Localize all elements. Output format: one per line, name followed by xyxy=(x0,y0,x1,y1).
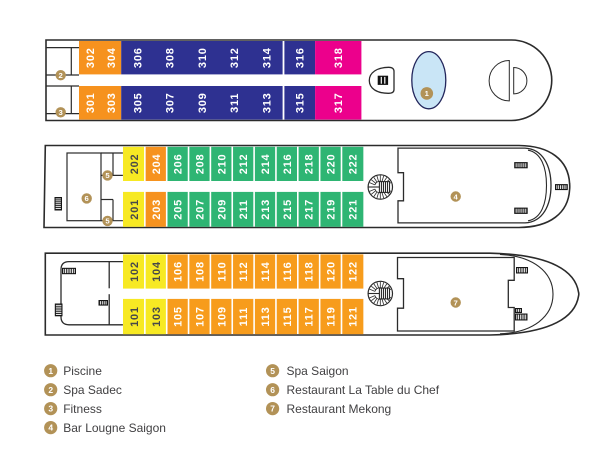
svg-text:1: 1 xyxy=(48,366,53,376)
svg-text:301: 301 xyxy=(85,92,97,113)
svg-text:211: 211 xyxy=(238,199,250,219)
svg-text:219: 219 xyxy=(326,199,338,220)
svg-text:103: 103 xyxy=(151,306,163,327)
svg-text:110: 110 xyxy=(216,261,228,281)
svg-text:212: 212 xyxy=(238,154,250,175)
svg-text:208: 208 xyxy=(194,154,206,175)
svg-text:107: 107 xyxy=(194,306,206,327)
svg-text:201: 201 xyxy=(129,199,141,220)
svg-text:217: 217 xyxy=(304,199,316,220)
svg-text:317: 317 xyxy=(333,92,345,113)
svg-text:214: 214 xyxy=(260,153,272,174)
svg-text:309: 309 xyxy=(197,92,209,113)
svg-text:106: 106 xyxy=(173,261,185,282)
svg-text:5: 5 xyxy=(270,366,275,376)
svg-text:316: 316 xyxy=(295,47,307,68)
svg-text:112: 112 xyxy=(238,261,250,281)
svg-text:312: 312 xyxy=(229,47,241,68)
svg-text:3: 3 xyxy=(48,404,53,414)
svg-text:207: 207 xyxy=(194,199,206,220)
svg-text:119: 119 xyxy=(326,306,338,326)
svg-text:2: 2 xyxy=(48,385,53,395)
svg-text:313: 313 xyxy=(261,92,273,113)
svg-text:4: 4 xyxy=(454,192,459,201)
svg-text:318: 318 xyxy=(333,47,345,68)
svg-text:218: 218 xyxy=(304,154,316,175)
svg-text:204: 204 xyxy=(151,153,163,174)
svg-text:203: 203 xyxy=(151,199,163,220)
svg-text:102: 102 xyxy=(129,261,141,282)
svg-text:3: 3 xyxy=(59,108,63,117)
svg-text:122: 122 xyxy=(347,261,359,282)
svg-text:117: 117 xyxy=(304,306,316,326)
svg-text:120: 120 xyxy=(326,261,338,282)
svg-text:108: 108 xyxy=(194,261,206,282)
svg-text:220: 220 xyxy=(326,154,338,175)
svg-text:4: 4 xyxy=(48,423,53,433)
svg-text:202: 202 xyxy=(129,154,141,175)
svg-text:Piscine: Piscine xyxy=(63,364,102,378)
svg-text:205: 205 xyxy=(173,199,185,220)
svg-text:Bar Lougne Saigon: Bar Lougne Saigon xyxy=(63,421,166,435)
svg-text:310: 310 xyxy=(197,47,209,68)
svg-text:315: 315 xyxy=(295,92,307,113)
svg-text:209: 209 xyxy=(216,199,228,220)
svg-text:101: 101 xyxy=(129,306,141,327)
svg-text:Spa Saigon: Spa Saigon xyxy=(287,364,349,378)
svg-text:221: 221 xyxy=(347,199,359,220)
svg-text:5: 5 xyxy=(105,217,110,226)
svg-text:111: 111 xyxy=(238,307,250,327)
svg-text:Restaurant La Table du Chef: Restaurant La Table du Chef xyxy=(287,383,440,397)
svg-text:307: 307 xyxy=(165,92,177,113)
svg-text:118: 118 xyxy=(304,261,316,281)
svg-text:Spa Sadec: Spa Sadec xyxy=(63,383,122,397)
svg-text:114: 114 xyxy=(260,261,272,281)
svg-text:210: 210 xyxy=(216,154,228,175)
svg-text:109: 109 xyxy=(216,306,228,327)
svg-text:Restaurant Mekong: Restaurant Mekong xyxy=(287,402,392,416)
svg-text:222: 222 xyxy=(347,154,359,175)
svg-text:306: 306 xyxy=(132,47,144,68)
svg-text:6: 6 xyxy=(85,194,89,203)
svg-text:308: 308 xyxy=(165,47,177,68)
svg-text:304: 304 xyxy=(106,47,118,68)
svg-text:6: 6 xyxy=(270,385,275,395)
svg-text:206: 206 xyxy=(173,154,185,175)
svg-text:121: 121 xyxy=(347,306,359,327)
svg-text:7: 7 xyxy=(270,404,275,414)
svg-text:311: 311 xyxy=(229,93,241,113)
svg-text:115: 115 xyxy=(282,306,294,326)
svg-text:Fitness: Fitness xyxy=(63,402,102,416)
svg-text:213: 213 xyxy=(260,199,272,220)
svg-text:305: 305 xyxy=(132,92,144,113)
svg-text:2: 2 xyxy=(59,71,63,80)
svg-text:216: 216 xyxy=(282,154,294,175)
svg-text:314: 314 xyxy=(261,47,273,68)
svg-text:105: 105 xyxy=(173,306,185,327)
svg-text:215: 215 xyxy=(282,199,294,220)
svg-text:113: 113 xyxy=(260,306,272,326)
svg-text:303: 303 xyxy=(106,92,118,113)
svg-text:7: 7 xyxy=(454,298,458,307)
svg-text:116: 116 xyxy=(282,261,294,281)
svg-text:302: 302 xyxy=(85,47,97,68)
svg-text:5: 5 xyxy=(105,171,110,180)
svg-text:104: 104 xyxy=(151,261,163,282)
